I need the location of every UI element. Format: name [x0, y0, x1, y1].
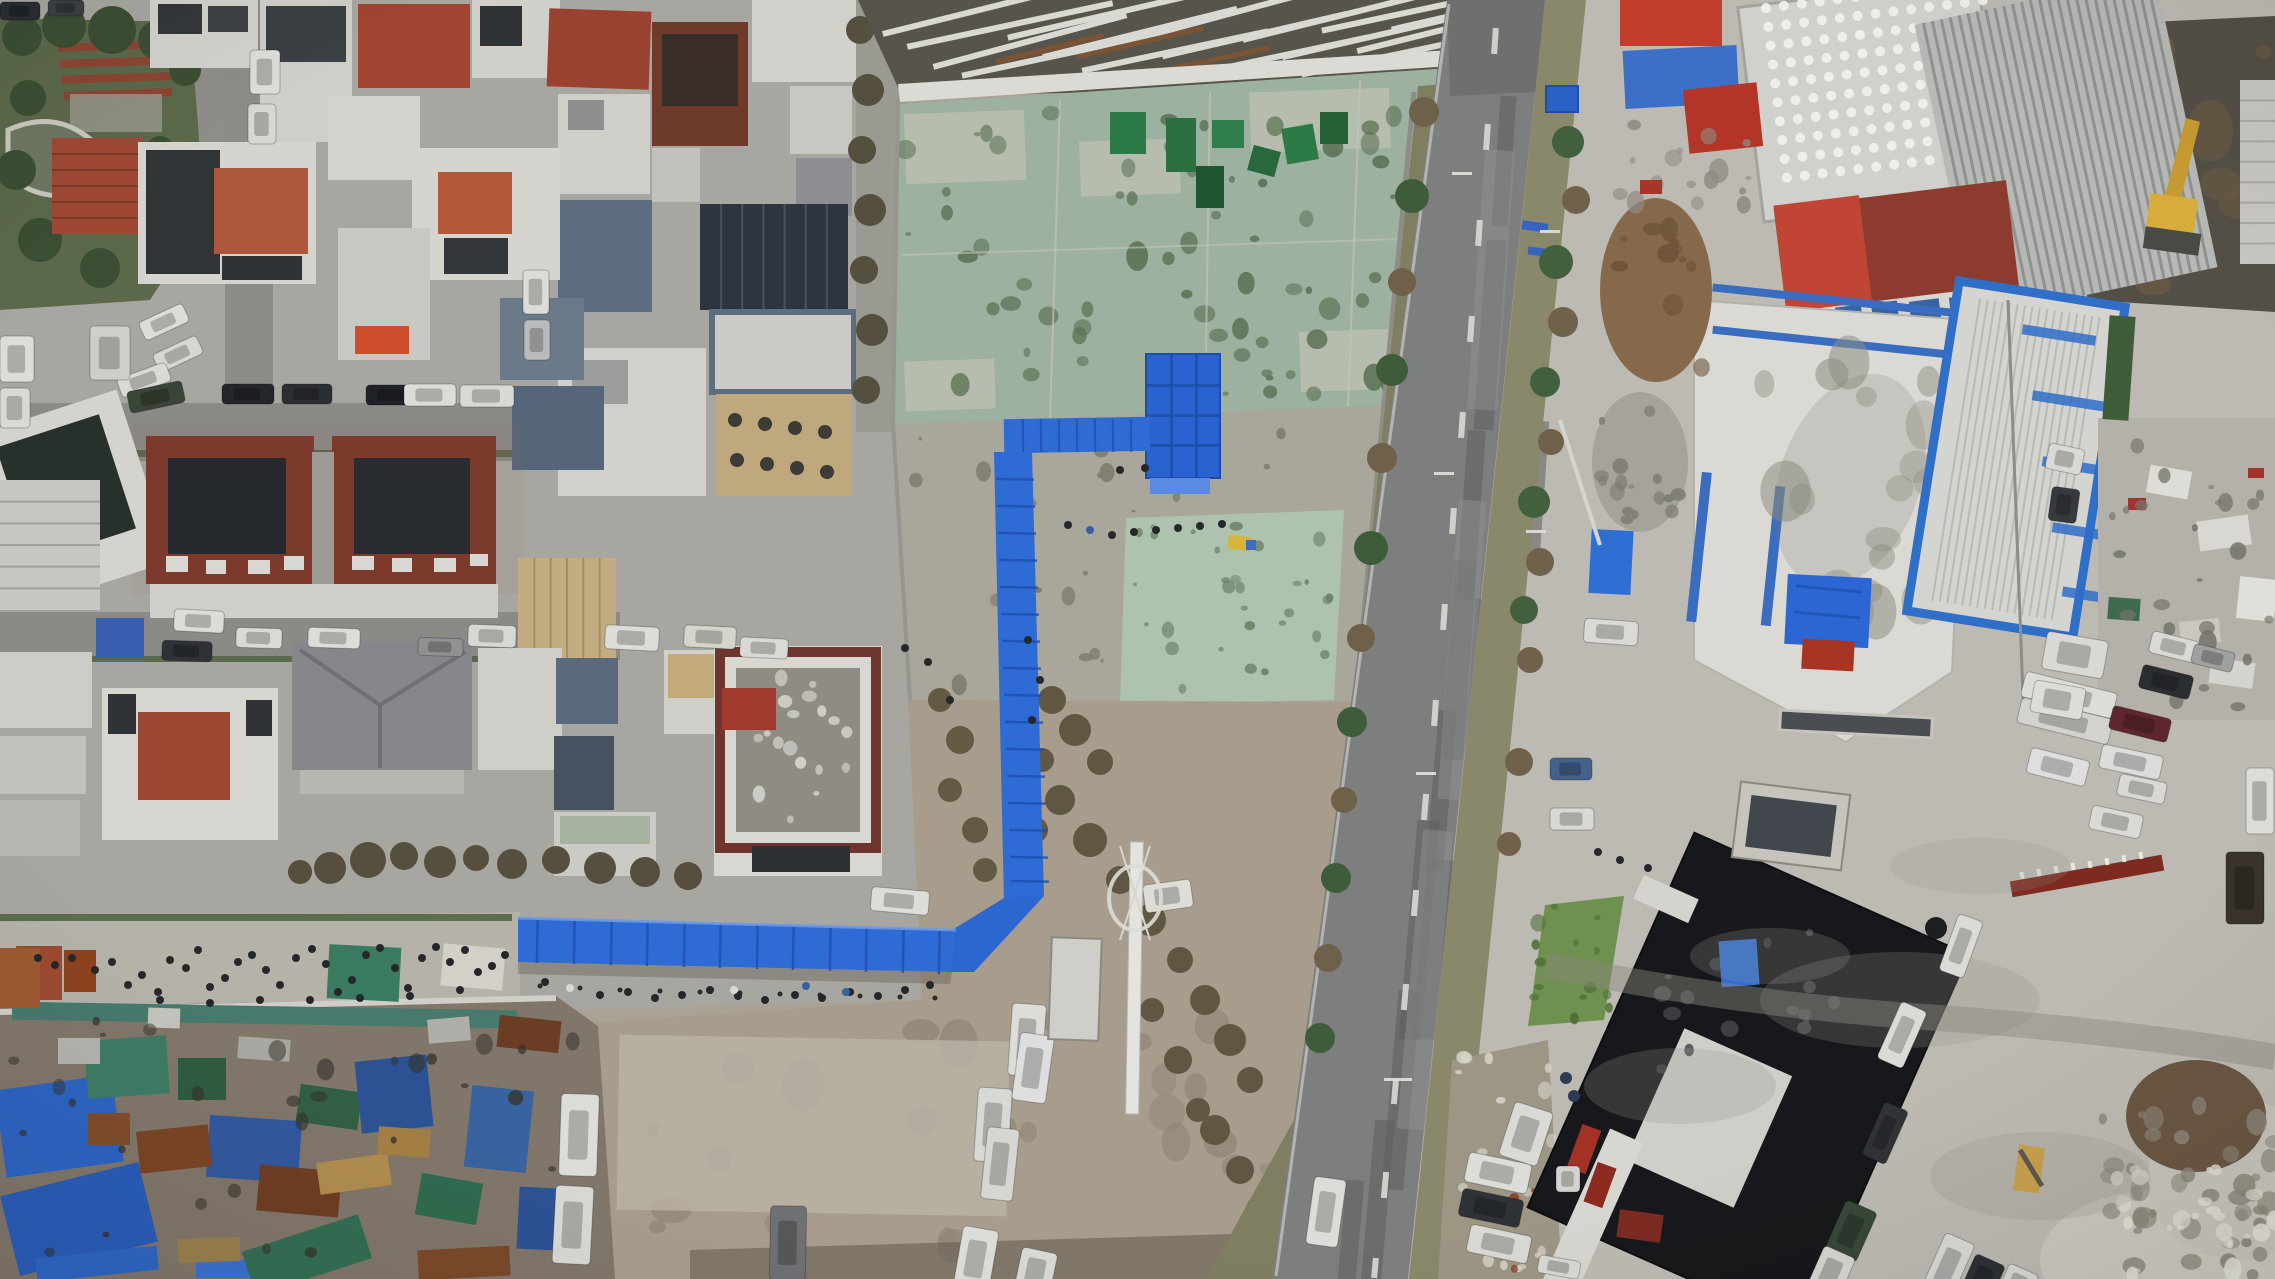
aerial-photo: [0, 0, 2275, 1279]
vignette-overlay: [0, 0, 2275, 1279]
aerial-photo-container: [0, 0, 2275, 1279]
